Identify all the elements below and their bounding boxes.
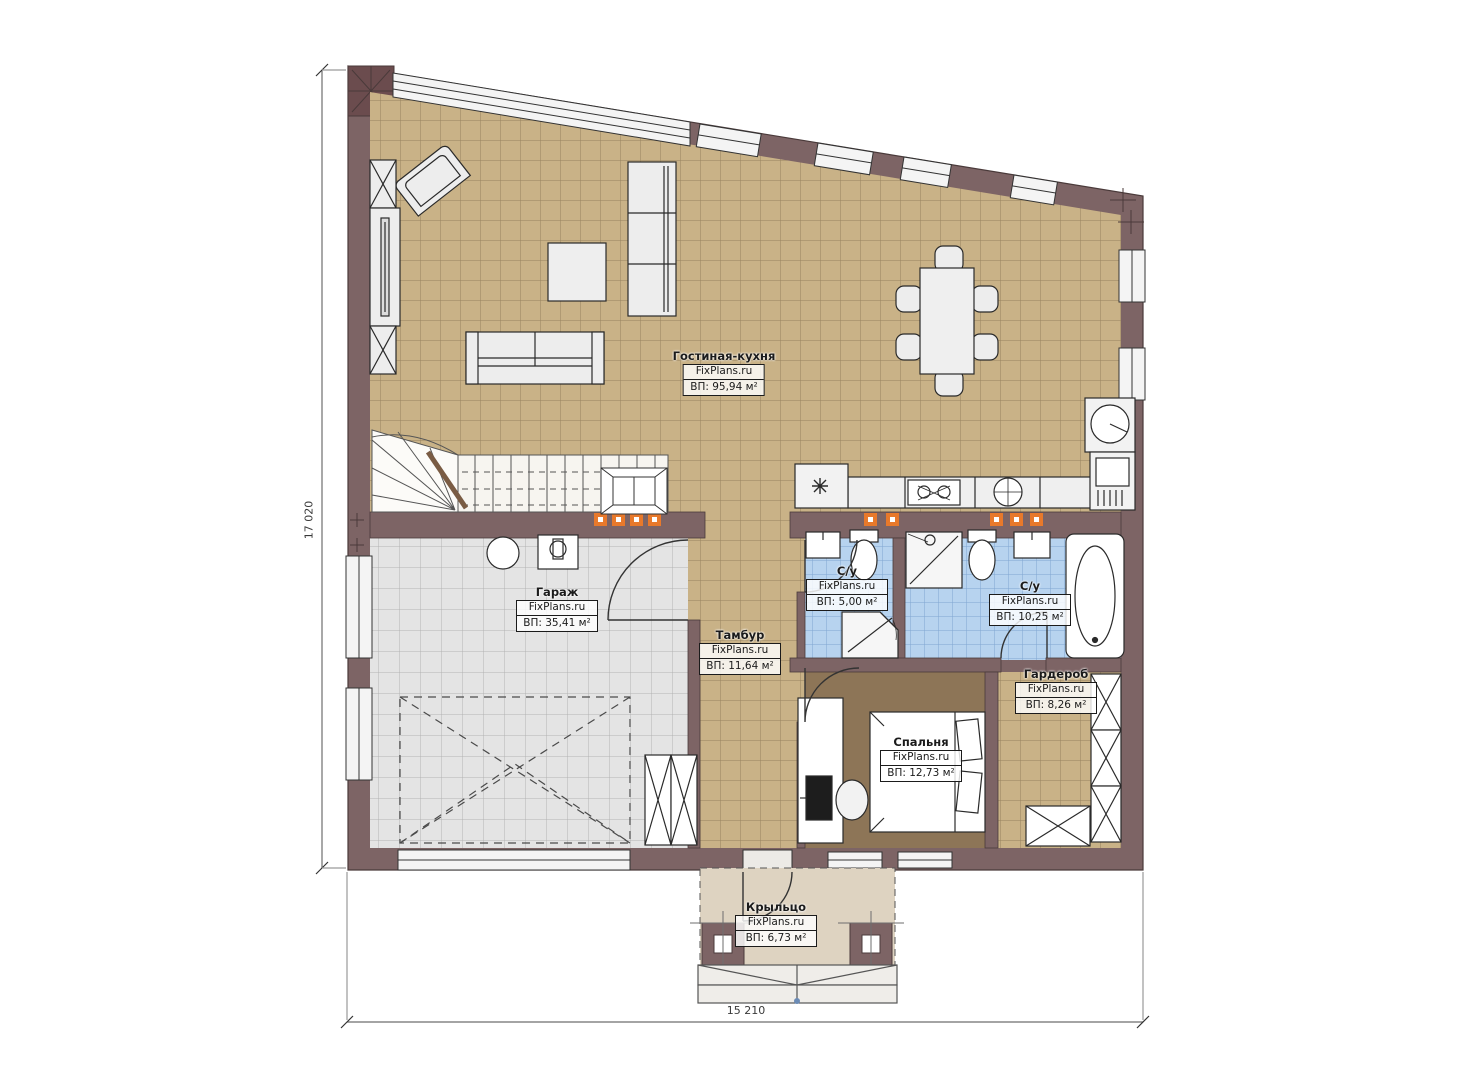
room-label-bedroom: Спальня FixPlans.ru ВП: 12,73 м²	[880, 736, 962, 782]
dimension-height: 17 020	[303, 501, 316, 540]
floor-plan-page: Гостиная-кухня FixPlans.ru ВП: 95,94 м² …	[0, 0, 1473, 1080]
room-area: ВП: 11,64 м²	[700, 659, 780, 674]
room-name: Спальня	[880, 736, 962, 748]
room-area: ВП: 95,94 м²	[684, 380, 764, 395]
tv-cabinet	[370, 160, 400, 374]
fridge	[1085, 398, 1135, 452]
brand-watermark: FixPlans.ru	[881, 751, 961, 766]
shower-big-bath	[906, 532, 962, 588]
brand-watermark: FixPlans.ru	[517, 601, 597, 616]
kitchen-counter	[848, 477, 1113, 508]
room-area: ВП: 10,25 м²	[990, 610, 1070, 625]
sink-small-bath	[806, 532, 840, 558]
room-info-box: FixPlans.ru ВП: 10,25 м²	[989, 594, 1071, 626]
coffee-table	[548, 243, 606, 301]
garage-floor	[370, 538, 688, 848]
room-name: С/у	[989, 580, 1071, 592]
room-name: Гостиная-кухня	[673, 350, 776, 362]
sofa	[466, 332, 604, 384]
room-name: Гараж	[516, 586, 598, 598]
tambour-floor	[688, 538, 805, 848]
room-info-box: FixPlans.ru ВП: 95,94 м²	[683, 364, 765, 396]
front-door-opening	[743, 850, 792, 870]
garage-cabinets	[645, 755, 697, 845]
brand-watermark: FixPlans.ru	[990, 595, 1070, 610]
toilet-big-bath	[968, 530, 996, 580]
shelving-unit	[628, 162, 676, 316]
room-info-box: FixPlans.ru ВП: 5,00 м²	[806, 579, 888, 611]
room-area: ВП: 6,73 м²	[736, 931, 816, 946]
room-info-box: FixPlans.ru ВП: 11,64 м²	[699, 643, 781, 675]
sink-big-bath	[1014, 532, 1050, 558]
room-label-garage: Гараж FixPlans.ru ВП: 35,41 м²	[516, 586, 598, 632]
room-label-porch: Крыльцо FixPlans.ru ВП: 6,73 м²	[735, 901, 817, 947]
boiler	[538, 535, 578, 569]
room-name: Тамбур	[699, 629, 781, 641]
dimension-width: 15 210	[727, 1004, 766, 1017]
tall-cabinet	[1090, 452, 1135, 510]
room-label-tambour: Тамбур FixPlans.ru ВП: 11,64 м²	[699, 629, 781, 675]
bathtub	[1066, 534, 1124, 658]
fireplace	[601, 468, 667, 514]
porch-steps	[698, 965, 897, 1004]
room-area: ВП: 8,26 м²	[1016, 698, 1096, 713]
room-name: Гардероб	[1015, 668, 1097, 680]
kitchen-island	[795, 464, 848, 508]
room-info-box: FixPlans.ru ВП: 8,26 м²	[1015, 682, 1097, 714]
room-label-bath-small: С/у FixPlans.ru ВП: 5,00 м²	[806, 565, 888, 611]
room-info-box: FixPlans.ru ВП: 12,73 м²	[880, 750, 962, 782]
room-label-bath-big: С/у FixPlans.ru ВП: 10,25 м²	[989, 580, 1071, 626]
room-info-box: FixPlans.ru ВП: 35,41 м²	[516, 600, 598, 632]
brand-watermark: FixPlans.ru	[1016, 683, 1096, 698]
room-area: ВП: 5,00 м²	[807, 595, 887, 610]
room-info-box: FixPlans.ru ВП: 6,73 м²	[735, 915, 817, 947]
room-label-wardrobe: Гардероб FixPlans.ru ВП: 8,26 м²	[1015, 668, 1097, 714]
room-label-living-kitchen: Гостиная-кухня FixPlans.ru ВП: 95,94 м²	[673, 350, 776, 396]
room-name: Крыльцо	[735, 901, 817, 913]
brand-watermark: FixPlans.ru	[736, 916, 816, 931]
room-area: ВП: 12,73 м²	[881, 766, 961, 781]
brand-watermark: FixPlans.ru	[807, 580, 887, 595]
kitchen-sink	[908, 480, 960, 505]
room-name: С/у	[806, 565, 888, 577]
desk-chair	[836, 780, 868, 820]
brand-watermark: FixPlans.ru	[700, 644, 780, 659]
water-heater	[487, 537, 519, 569]
passage-floor	[705, 512, 790, 538]
stove	[994, 478, 1022, 506]
brand-watermark: FixPlans.ru	[684, 365, 764, 380]
room-area: ВП: 35,41 м²	[517, 616, 597, 631]
